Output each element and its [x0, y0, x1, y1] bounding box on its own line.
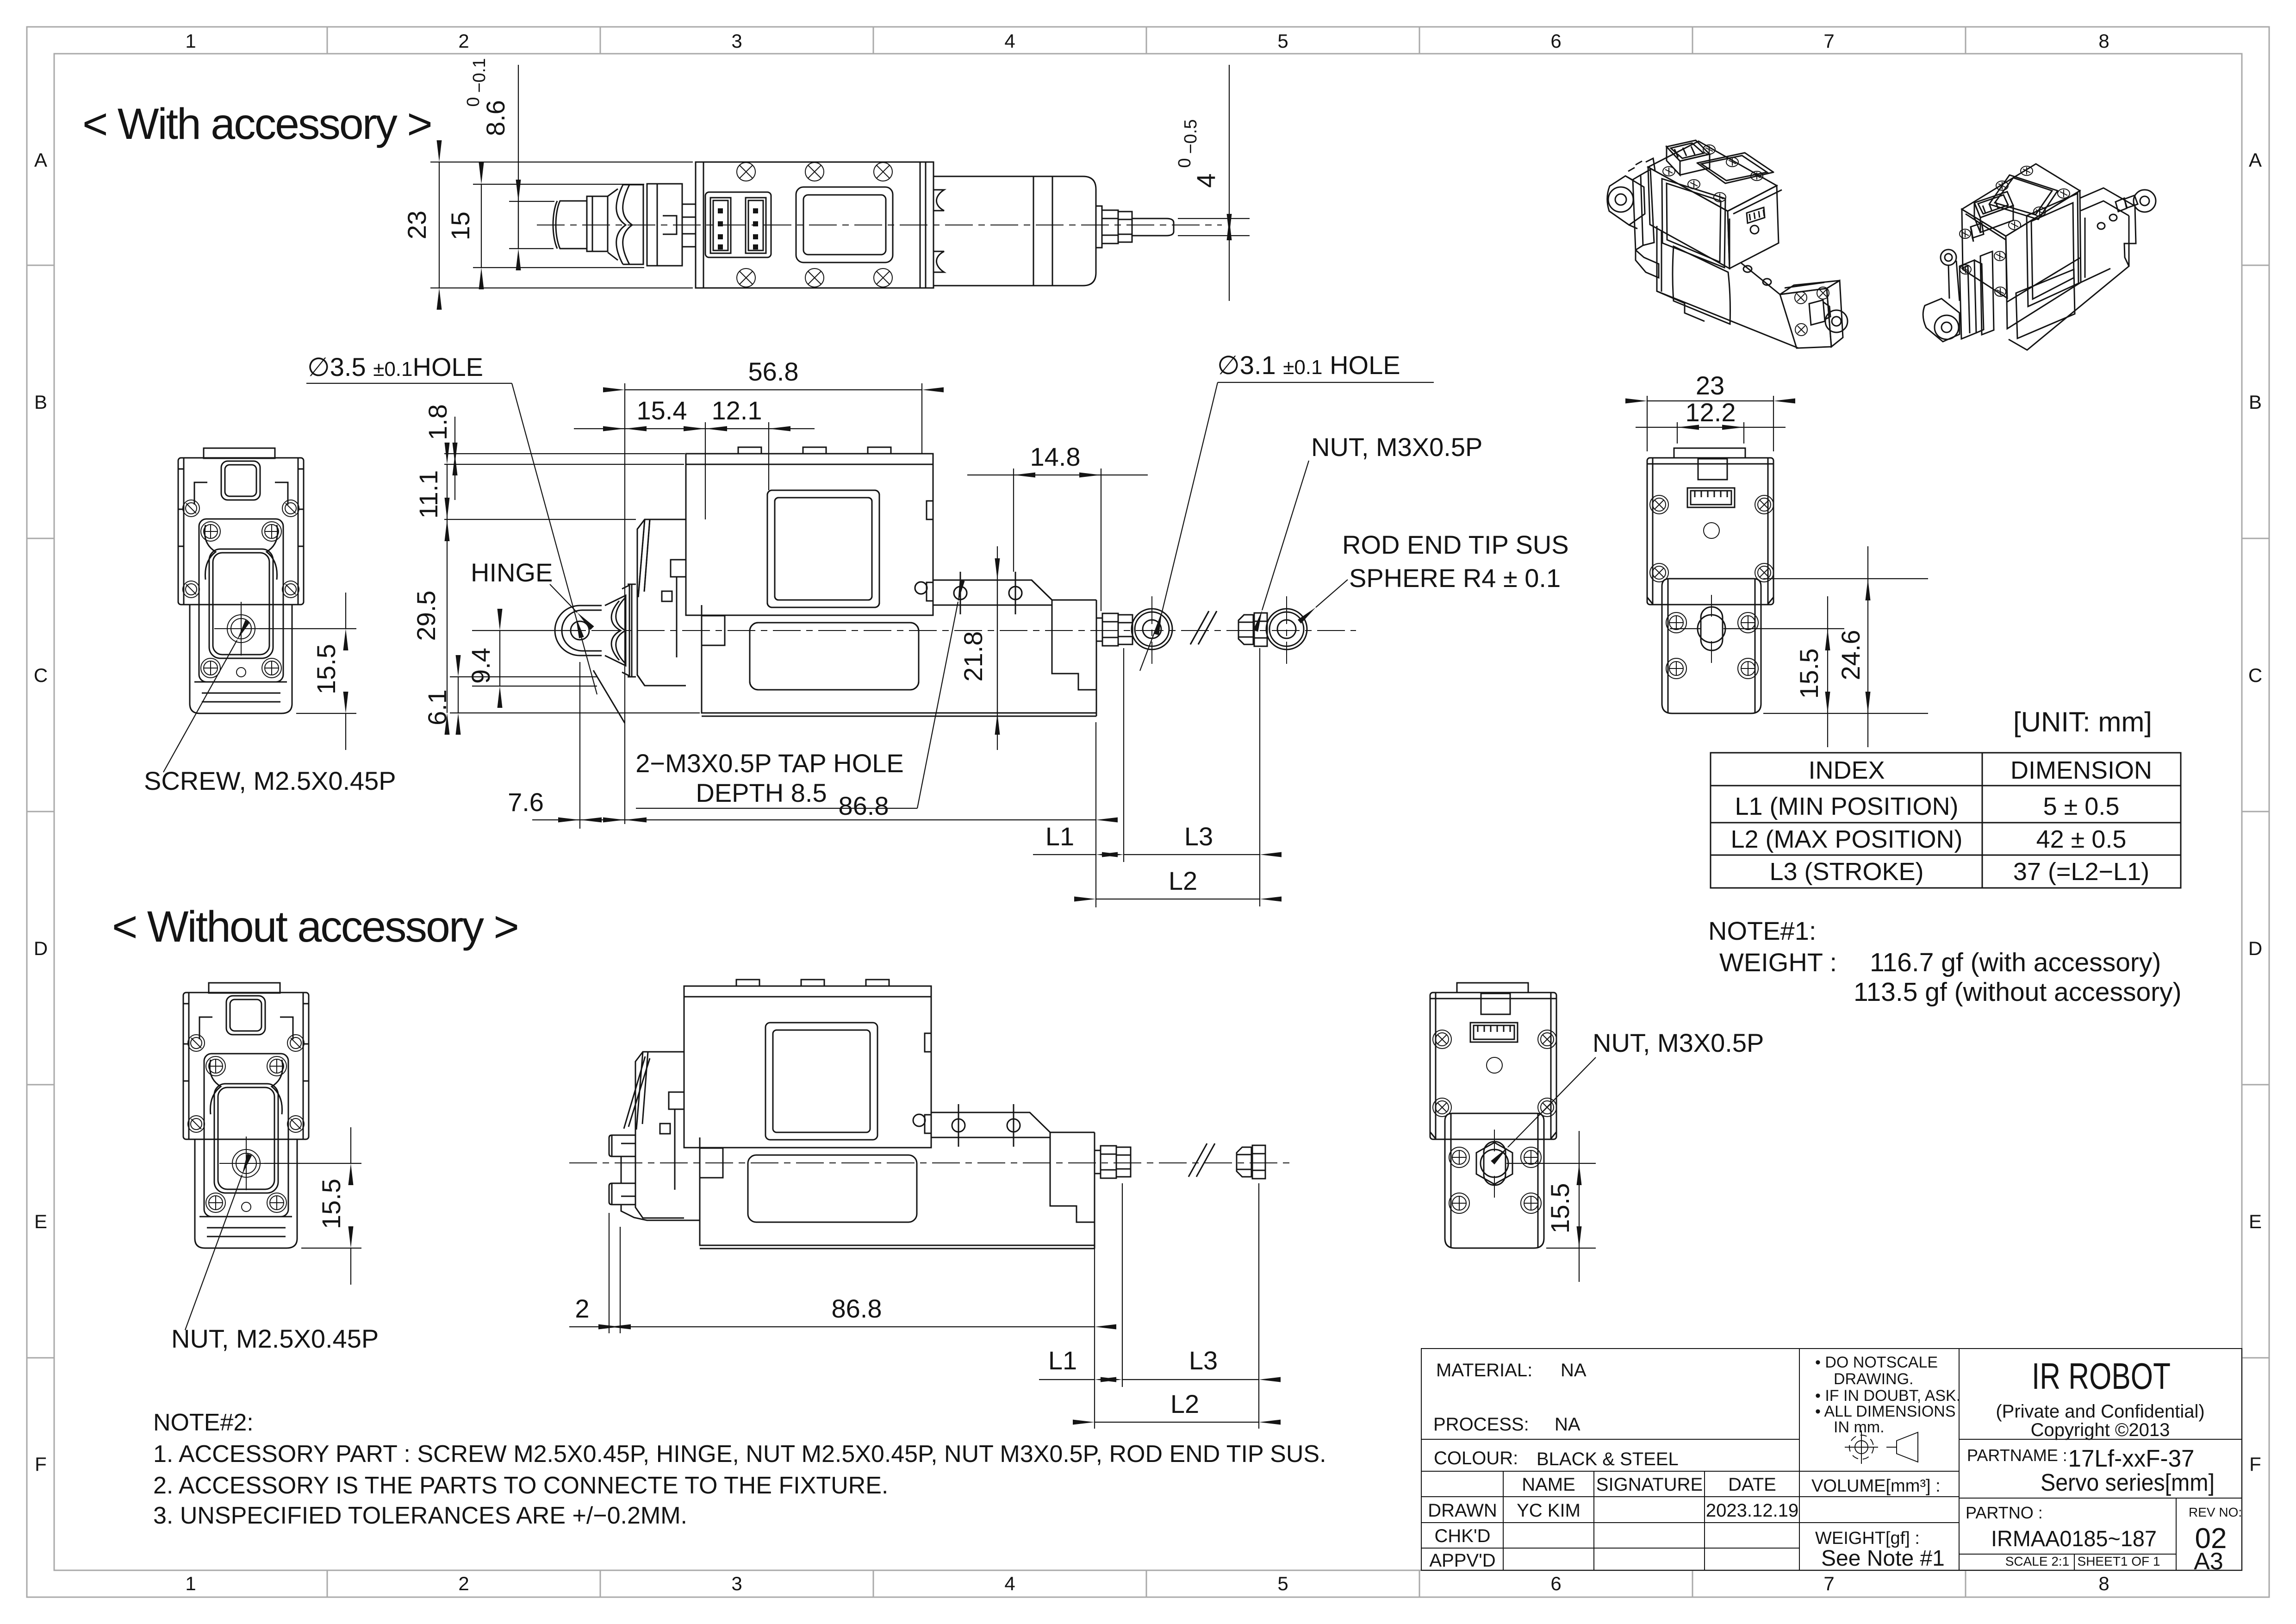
svg-text:1. ACCESSORY PART : SCREW M2.: 1. ACCESSORY PART : SCREW M2.5X0.45P, HI… [153, 1441, 1326, 1468]
svg-text:C: C [34, 664, 48, 686]
svg-text:NUT, M3X0.5P: NUT, M3X0.5P [1593, 1028, 1764, 1057]
svg-text:SCREW, M2.5X0.45P: SCREW, M2.5X0.45P [144, 766, 396, 795]
svg-text:21.8: 21.8 [958, 631, 988, 682]
svg-text:37 (=L2−L1): 37 (=L2−L1) [2013, 858, 2149, 886]
svg-text:2. ACCESSORY IS THE PARTS TO C: 2. ACCESSORY IS THE PARTS TO CONNECTE TO… [153, 1472, 888, 1499]
svg-text:DIMENSION: DIMENSION [2010, 756, 2152, 784]
svg-text:APPV'D: APPV'D [1429, 1550, 1495, 1571]
svg-text:L2 (MAX POSITION): L2 (MAX POSITION) [1730, 825, 1962, 853]
svg-text:3: 3 [731, 30, 742, 52]
svg-text:7.6: 7.6 [508, 787, 544, 817]
svg-text:L3: L3 [1189, 1346, 1218, 1375]
svg-text:56.8: 56.8 [748, 357, 799, 386]
svg-text:COLOUR:: COLOUR: [1434, 1448, 1518, 1468]
svg-text:NOTE#2:: NOTE#2: [153, 1409, 254, 1436]
svg-text:SCALE 2:1: SCALE 2:1 [2005, 1554, 2070, 1568]
svg-text:23: 23 [402, 211, 431, 239]
svg-text:1: 1 [185, 1573, 196, 1594]
svg-text:−0.1: −0.1 [470, 58, 489, 93]
svg-text:12.1: 12.1 [712, 396, 762, 425]
svg-text:PARTNAME :: PARTNAME : [1967, 1446, 2067, 1465]
svg-text:29.5: 29.5 [411, 591, 441, 641]
svg-text:0: 0 [464, 97, 483, 106]
svg-text:7: 7 [1823, 30, 1834, 52]
svg-text:DRAWN: DRAWN [1428, 1500, 1497, 1521]
svg-text:86.8: 86.8 [832, 1294, 882, 1323]
svg-text:1: 1 [185, 30, 196, 52]
svg-text:8.6: 8.6 [481, 100, 510, 136]
svg-text:D: D [2248, 937, 2262, 959]
svg-text:NUT, M3X0.5P: NUT, M3X0.5P [1311, 432, 1482, 462]
svg-text:MATERIAL:: MATERIAL: [1436, 1360, 1532, 1380]
svg-text:• DO NOTSCALE: • DO NOTSCALE [1815, 1354, 1938, 1371]
svg-text:E: E [34, 1211, 47, 1232]
svg-text:15.5: 15.5 [317, 1179, 346, 1229]
svg-text:< With accessory >: < With accessory > [82, 100, 431, 149]
svg-text:2: 2 [458, 30, 469, 52]
svg-text:15: 15 [446, 212, 475, 240]
svg-text:INDEX: INDEX [1808, 756, 1885, 784]
svg-text:NAME: NAME [1522, 1474, 1575, 1495]
svg-text:15.4: 15.4 [637, 396, 687, 425]
svg-text:F: F [2249, 1453, 2261, 1475]
svg-text:86.8: 86.8 [839, 791, 889, 820]
svg-text:L3: L3 [1184, 822, 1213, 851]
svg-text:A3: A3 [2194, 1548, 2223, 1575]
svg-text:< Without accessory >: < Without accessory > [112, 902, 518, 951]
svg-text:F: F [35, 1453, 47, 1475]
svg-text:NUT, M2.5X0.45P: NUT, M2.5X0.45P [171, 1324, 379, 1353]
svg-text:IN mm.: IN mm. [1834, 1418, 1885, 1436]
svg-text:DEPTH 8.5: DEPTH 8.5 [696, 778, 827, 807]
svg-text:∅3.1 ±0.1 HOLE: ∅3.1 ±0.1 HOLE [1217, 350, 1400, 380]
svg-text:IR ROBOT: IR ROBOT [2032, 1355, 2171, 1397]
svg-text:YC KIM: YC KIM [1517, 1500, 1580, 1521]
svg-text:2: 2 [458, 1573, 469, 1594]
svg-text:−0.5: −0.5 [1181, 119, 1201, 154]
svg-text:15.5: 15.5 [1794, 649, 1823, 699]
svg-text:4: 4 [1004, 30, 1015, 52]
svg-text:A: A [34, 149, 47, 171]
svg-text:2−M3X0.5P TAP HOLE: 2−M3X0.5P TAP HOLE [635, 749, 904, 778]
svg-text:SPHERE R4 ± 0.1: SPHERE R4 ± 0.1 [1349, 563, 1561, 593]
svg-text:D: D [34, 937, 48, 959]
svg-text:C: C [2248, 664, 2262, 686]
svg-text:15.5: 15.5 [1545, 1183, 1574, 1234]
svg-text:NOTE#1:: NOTE#1: [1708, 916, 1816, 945]
svg-text:E: E [2249, 1211, 2262, 1232]
svg-text:NA: NA [1561, 1360, 1587, 1380]
svg-text:A: A [2249, 149, 2262, 171]
svg-text:L1: L1 [1048, 1346, 1077, 1375]
svg-text:L2: L2 [1170, 1389, 1199, 1418]
svg-text:2: 2 [575, 1294, 589, 1323]
svg-text:116.7 gf (with accessory): 116.7 gf (with accessory) [1870, 948, 2161, 977]
svg-text:DATE: DATE [1728, 1474, 1776, 1495]
svg-text:• ALL DIMENSIONS: • ALL DIMENSIONS [1815, 1403, 1956, 1420]
svg-text:HINGE: HINGE [471, 558, 553, 587]
svg-text:14.8: 14.8 [1030, 442, 1081, 471]
svg-text:Servo series[mm]: Servo series[mm] [2041, 1469, 2215, 1496]
svg-text:BLACK & STEEL: BLACK & STEEL [1537, 1449, 1679, 1469]
svg-text:6: 6 [1550, 30, 1561, 52]
svg-text:WEIGHT :: WEIGHT : [1719, 948, 1837, 977]
svg-text:5 ± 0.5: 5 ± 0.5 [2043, 793, 2120, 820]
svg-text:WEIGHT[gf] :: WEIGHT[gf] : [1815, 1529, 1920, 1548]
svg-text:4: 4 [1191, 173, 1220, 187]
svg-text:CHK'D: CHK'D [1435, 1526, 1491, 1546]
svg-text:3. UNSPECIFIED TOLERANCES ARE: 3. UNSPECIFIED TOLERANCES ARE +/−0.2MM. [153, 1502, 687, 1529]
svg-text:8: 8 [2098, 1573, 2109, 1594]
svg-text:0: 0 [1175, 158, 1195, 168]
svg-text:SHEET1 OF 1: SHEET1 OF 1 [2078, 1554, 2160, 1568]
svg-text:SIGNATURE: SIGNATURE [1596, 1474, 1703, 1495]
svg-text:VOLUME[mm³] :: VOLUME[mm³] : [1811, 1476, 1941, 1496]
svg-text:Copyright ©2013: Copyright ©2013 [2031, 1420, 2170, 1440]
svg-text:L3 (STROKE): L3 (STROKE) [1769, 858, 1923, 886]
svg-text:5: 5 [1277, 1573, 1288, 1594]
svg-text:23: 23 [1696, 371, 1724, 400]
svg-text:4: 4 [1004, 1573, 1015, 1594]
svg-text:See Note #1: See Note #1 [1821, 1546, 1945, 1571]
svg-text:6.1: 6.1 [423, 689, 452, 725]
svg-text:IRMAA0185~187: IRMAA0185~187 [1991, 1527, 2157, 1551]
svg-text:9.4: 9.4 [466, 648, 495, 684]
svg-text:12.2: 12.2 [1686, 398, 1736, 427]
svg-text:REV NO:: REV NO: [2189, 1505, 2242, 1519]
svg-text:DRAWING.: DRAWING. [1834, 1370, 1914, 1388]
svg-text:PROCESS:: PROCESS: [1433, 1414, 1529, 1435]
svg-text:113.5 gf (without accessory): 113.5 gf (without accessory) [1854, 977, 2182, 1007]
svg-text:42 ± 0.5: 42 ± 0.5 [2036, 825, 2127, 853]
svg-text:7: 7 [1823, 1573, 1834, 1594]
svg-text:1.8: 1.8 [423, 404, 452, 440]
svg-text:(Private and Confidential): (Private and Confidential) [1996, 1401, 2204, 1422]
svg-text:ROD END TIP SUS: ROD END TIP SUS [1342, 530, 1569, 559]
svg-text:17Lf-xxF-37: 17Lf-xxF-37 [2068, 1445, 2195, 1472]
svg-text:L1: L1 [1045, 822, 1074, 851]
svg-text:• IF IN DOUBT, ASK.: • IF IN DOUBT, ASK. [1815, 1387, 1960, 1405]
svg-text:6: 6 [1550, 1573, 1561, 1594]
svg-text:15.5: 15.5 [311, 644, 341, 694]
svg-text:PARTNO :: PARTNO : [1966, 1503, 2043, 1522]
svg-text:L1 (MIN POSITION): L1 (MIN POSITION) [1735, 793, 1958, 820]
svg-text:NA: NA [1555, 1414, 1580, 1435]
svg-text:24.6: 24.6 [1836, 630, 1865, 681]
svg-text:∅3.5 ±0.1HOLE: ∅3.5 ±0.1HOLE [307, 352, 483, 381]
svg-text:2023.12.19: 2023.12.19 [1706, 1500, 1798, 1521]
svg-text:B: B [2249, 391, 2262, 413]
svg-text:8: 8 [2098, 30, 2109, 52]
svg-text:5: 5 [1277, 30, 1288, 52]
svg-text:L2: L2 [1169, 866, 1197, 895]
svg-text:[UNIT: mm]: [UNIT: mm] [2013, 706, 2152, 737]
svg-text:3: 3 [731, 1573, 742, 1594]
svg-text:B: B [34, 391, 47, 413]
svg-text:11.1: 11.1 [414, 470, 443, 519]
